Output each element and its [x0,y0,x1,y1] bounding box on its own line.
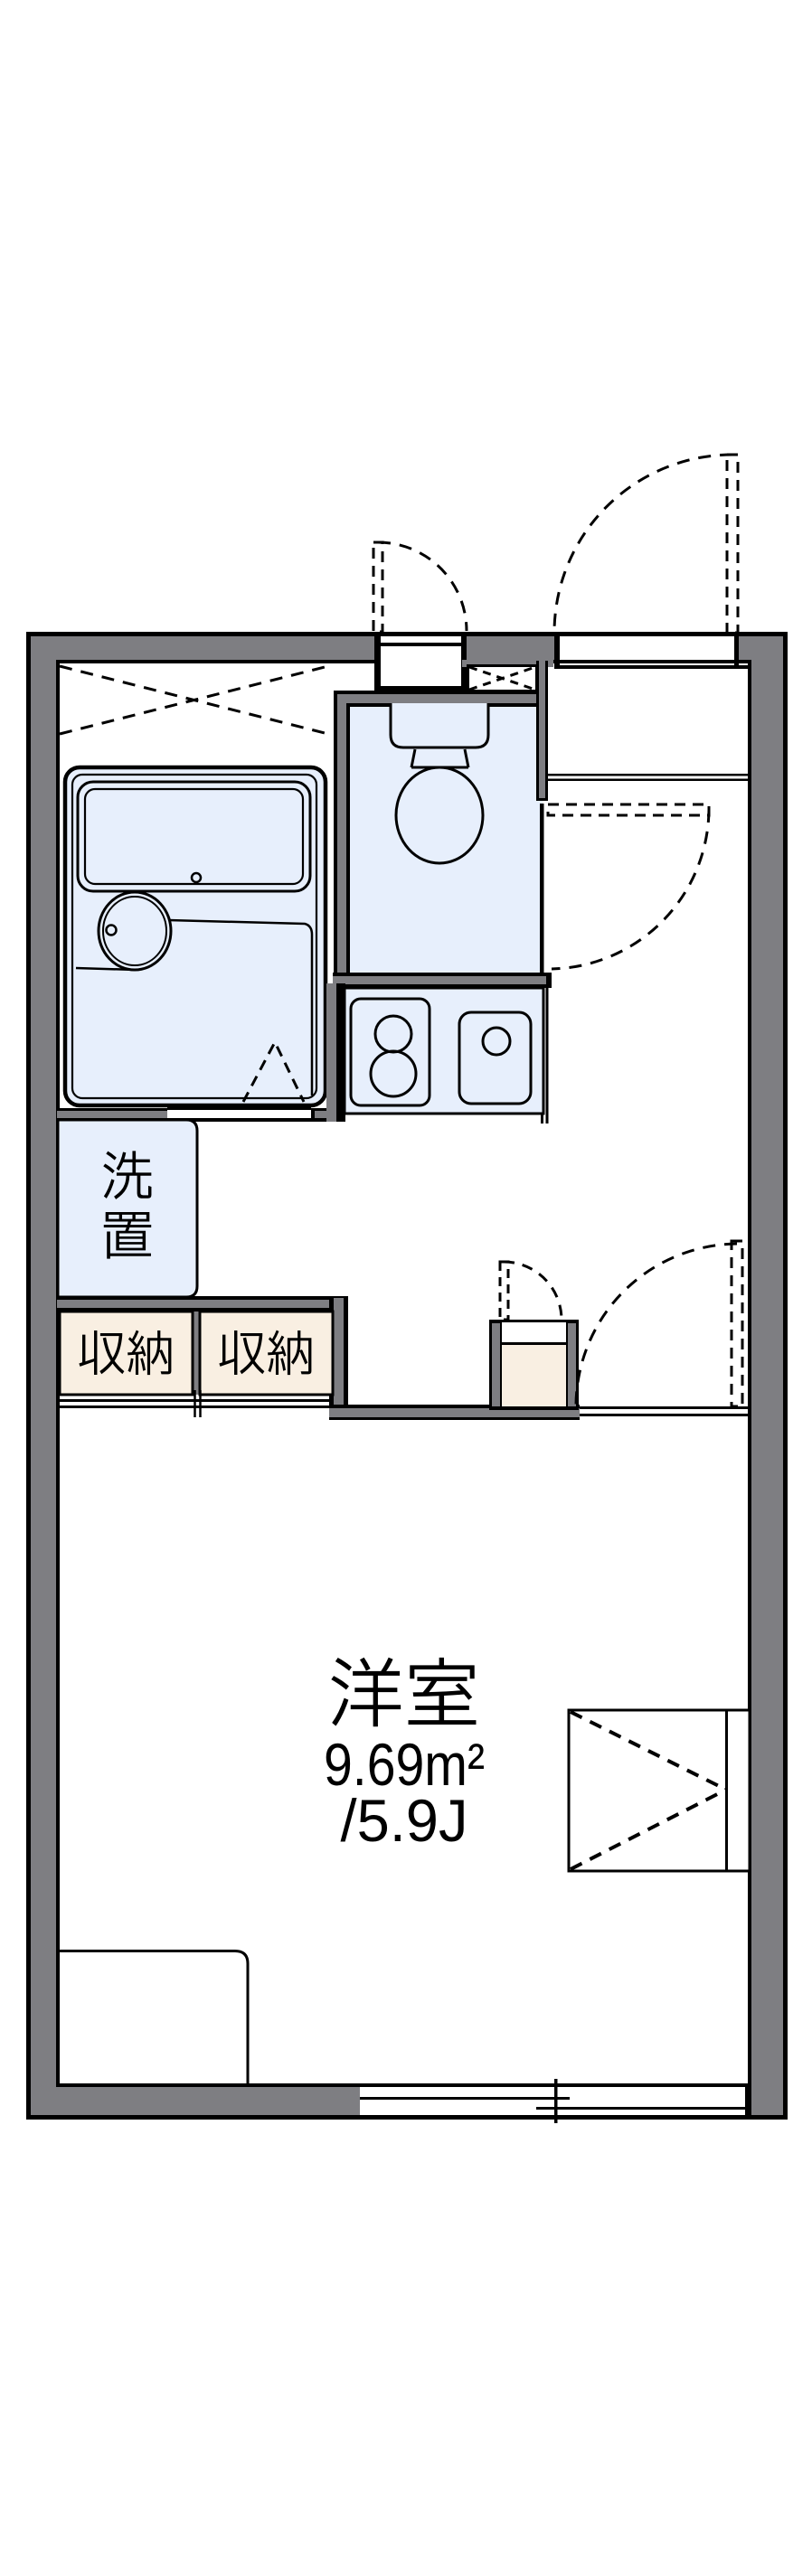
svg-text:/5.9J: /5.9J [341,1787,468,1854]
